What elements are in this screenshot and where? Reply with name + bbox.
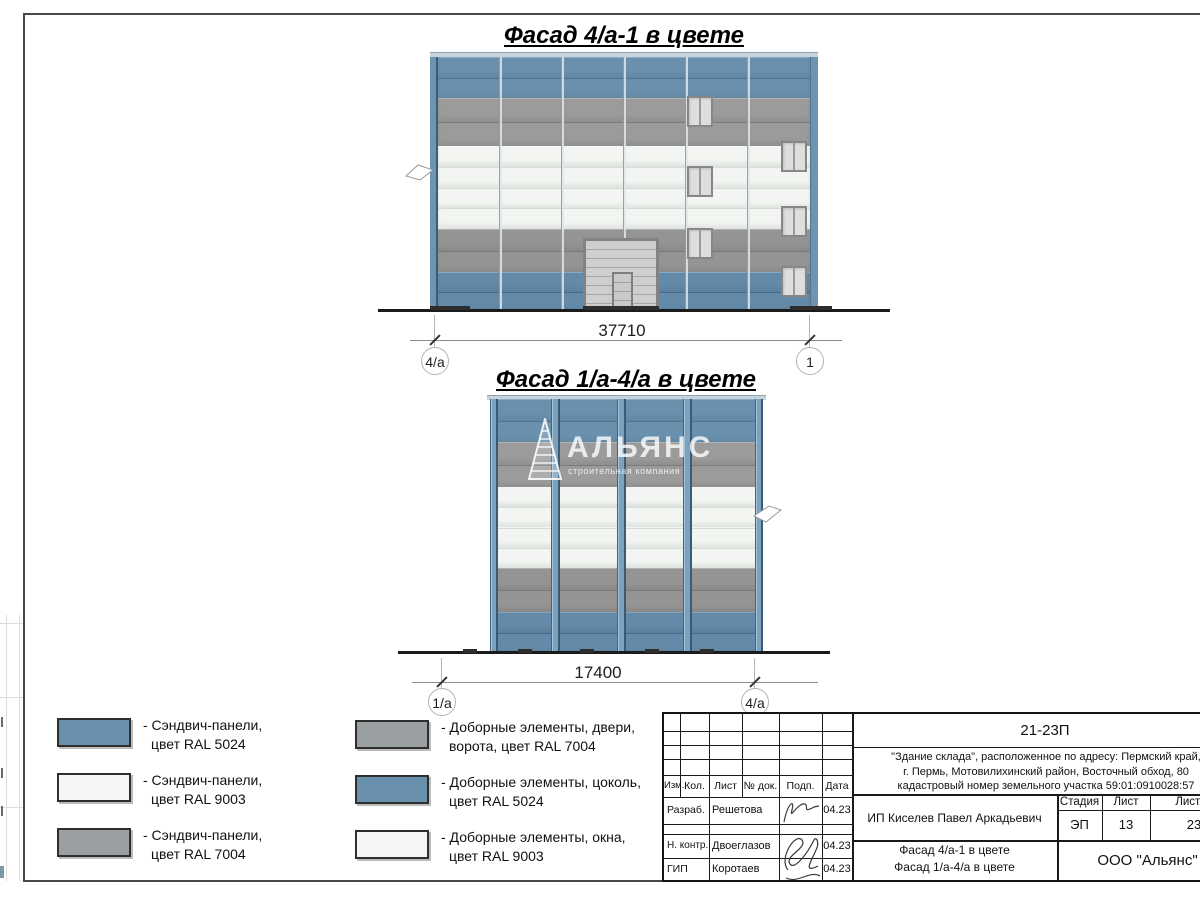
color-swatch [57, 828, 131, 857]
facade1-right-edge [810, 57, 818, 311]
rev-header: Дата [822, 775, 852, 797]
color-swatch [355, 775, 429, 804]
legend-item: - Доборные элементы, двери,ворота, цвет … [441, 718, 635, 755]
role-label: ГИП [667, 858, 709, 880]
sheets-total: 23 [1150, 810, 1200, 840]
rev-header: Кол. [680, 775, 709, 797]
color-swatch [355, 830, 429, 859]
facade2-title: Фасад 1/а-4/а в цвете [426, 366, 826, 394]
role-date: 04.23 [822, 834, 852, 858]
sheet-title: Фасад 4/а-1 в цвете Фасад 1/а-4/а в цвет… [854, 842, 1055, 876]
role-date: 04.23 [822, 858, 852, 880]
signature-icon [776, 826, 824, 882]
color-swatch [355, 720, 429, 749]
role-date: 04.23 [822, 797, 852, 824]
break-mark-icon [752, 505, 782, 523]
color-swatch [57, 718, 131, 747]
pilaster [617, 399, 626, 653]
sheets-label: Листов [1150, 794, 1200, 810]
rev-header: № док. [742, 775, 779, 797]
window [781, 206, 807, 237]
pilaster [755, 399, 763, 653]
dimension-value: 37710 [562, 321, 682, 341]
doc-number: 21-23П [852, 714, 1200, 747]
stage-label: Стадия [1057, 794, 1102, 810]
role-label: Разраб. [667, 797, 709, 824]
break-mark-icon [405, 163, 435, 181]
window [687, 96, 713, 127]
window [781, 266, 807, 297]
signature-icon [778, 794, 822, 828]
pilaster [551, 399, 560, 653]
window [687, 166, 713, 197]
color-swatch [57, 773, 131, 802]
pilaster [490, 399, 498, 653]
project-description: "Здание склада", расположенное по адресу… [854, 750, 1200, 794]
mullion [747, 57, 750, 311]
pilaster [683, 399, 692, 653]
role-name: Решетова [712, 797, 778, 824]
rev-header: Лист [709, 775, 742, 797]
legend-item: - Доборные элементы, окна,цвет RAL 9003 [441, 828, 626, 865]
rev-header: Изм. [664, 775, 680, 797]
window [687, 228, 713, 259]
facade1-left-edge [430, 57, 438, 311]
legend-item: - Сэндвич-панели,цвет RAL 5024 [143, 716, 262, 753]
sheet-number: 13 [1102, 810, 1150, 840]
legend-item: - Сэндвич-панели,цвет RAL 7004 [143, 826, 262, 863]
mullion [561, 57, 564, 311]
facade2-panels [490, 399, 763, 653]
facade1-title: Фасад 4/а-1 в цвете [424, 22, 824, 50]
client-name: ИП Киселев Павел Аркадьевич [854, 798, 1055, 838]
title-block: Изм. Кол. Лист № док. Подп. Дата Разраб.… [662, 712, 1200, 882]
sheet-label: Лист [1102, 794, 1150, 810]
company-name: ООО "Альянс" [1057, 840, 1200, 880]
mullion [499, 57, 502, 311]
stage-value: ЭП [1057, 810, 1102, 840]
role-label: Н. контр. [667, 834, 709, 858]
axis-marker: 1/а [428, 688, 456, 716]
role-name: Двоеглазов [712, 834, 778, 858]
dimension-value: 17400 [538, 663, 658, 683]
window [781, 141, 807, 172]
gate-door [583, 238, 659, 311]
legend-item: - Доборные элементы, цоколь,цвет RAL 502… [441, 773, 641, 810]
wicket-door [612, 272, 633, 308]
role-name: Коротаев [712, 858, 778, 880]
legend-item: - Сэндвич-панели,цвет RAL 9003 [143, 771, 262, 808]
